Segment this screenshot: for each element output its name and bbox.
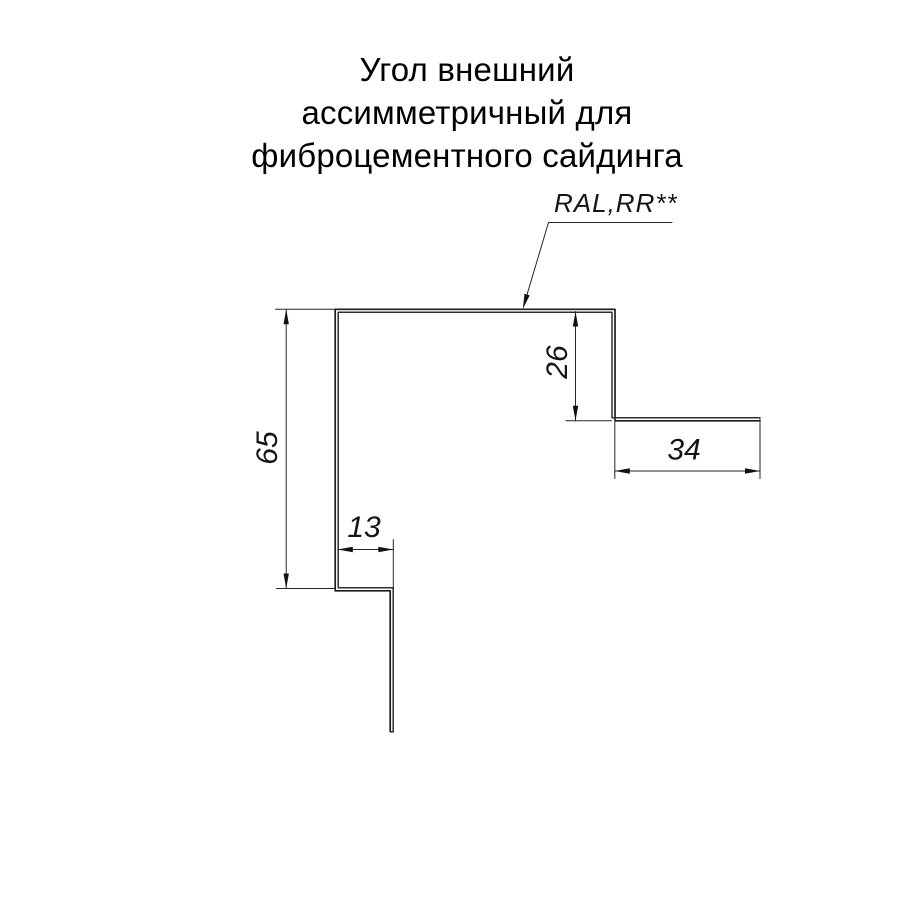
- callout-label: RAL,RR**: [554, 188, 678, 218]
- dim-26-arrow-down-icon: [573, 406, 578, 421]
- dim-34-label: 34: [667, 434, 700, 467]
- dim-34-arrow-left-icon: [615, 468, 630, 473]
- dim-26-label: 26: [541, 345, 574, 380]
- dim-65-arrow-up-icon: [284, 309, 289, 324]
- dim-34-arrow-right-icon: [745, 468, 760, 473]
- dim-13-arrow-left-icon: [338, 547, 353, 552]
- dim-13-arrow-right-icon: [378, 547, 393, 552]
- dim-13-label: 13: [347, 511, 381, 544]
- profile-drawing: 65 26 13 34 RAL,RR**: [0, 0, 900, 900]
- dim-26-arrow-up-icon: [573, 312, 578, 327]
- dim-65-arrow-down-icon: [284, 574, 289, 589]
- drawing-page: Угол внешний ассимметричный для фиброцем…: [0, 0, 900, 900]
- callout-arrow-icon: [523, 294, 530, 309]
- callout-leader-line: [525, 223, 549, 304]
- dim-65-label: 65: [251, 431, 284, 465]
